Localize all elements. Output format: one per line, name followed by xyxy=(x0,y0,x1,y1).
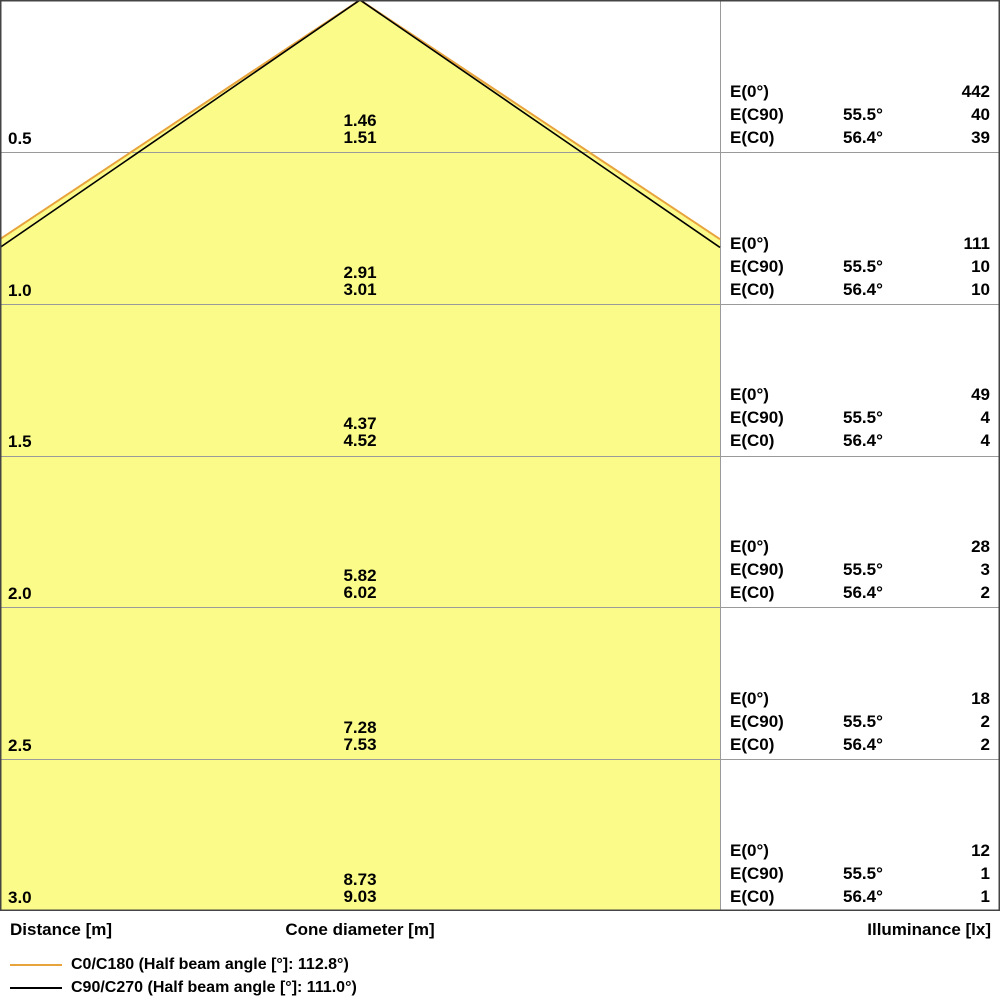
row-2.0m: 2.0 5.82 6.02 E(0°)28 E(C90)55.5°3 E(C0)… xyxy=(0,455,1000,607)
e0-value: 18 xyxy=(971,687,990,710)
row-0.5m: 0.5 1.46 1.51 E(0°)442 E(C90)55.5°40 E(C… xyxy=(0,0,1000,152)
cone-diameter-values: 7.28 7.53 xyxy=(260,719,460,753)
ec0-value: 39 xyxy=(971,126,990,149)
cone-diameter-c0: 6.02 xyxy=(260,584,460,601)
ec0-value: 1 xyxy=(981,885,990,908)
cone-diameter-c90: 1.46 xyxy=(260,112,460,129)
ec90-angle: 55.5° xyxy=(843,255,971,278)
row-3.0m: 3.0 8.73 9.03 E(0°)12 E(C90)55.5°1 E(C0)… xyxy=(0,759,1000,911)
e0-angle xyxy=(843,535,971,558)
cone-diameter-c0: 4.52 xyxy=(260,432,460,449)
ec90-label: E(C90) xyxy=(730,103,843,126)
distance-label: 1.0 xyxy=(8,281,32,301)
cone-diameter-values: 4.37 4.52 xyxy=(260,415,460,449)
ec90-angle: 55.5° xyxy=(843,710,981,733)
chart-area: 0.5 1.46 1.51 E(0°)442 E(C90)55.5°40 E(C… xyxy=(0,0,1000,911)
e0-line: E(0°)12 xyxy=(730,839,990,862)
c90-c270-line-swatch xyxy=(10,987,62,989)
ec90-angle: 55.5° xyxy=(843,558,981,581)
legend-item-c90-c270: C90/C270 (Half beam angle [°]: 111.0°) xyxy=(10,976,1000,999)
ec0-value: 2 xyxy=(981,733,990,756)
e0-line: E(0°)18 xyxy=(730,687,990,710)
axis-label-distance: Distance [m] xyxy=(10,920,112,940)
ec90-value: 2 xyxy=(981,710,990,733)
ec90-line: E(C90)55.5°4 xyxy=(730,406,990,429)
e0-angle xyxy=(843,232,964,255)
ec0-label: E(C0) xyxy=(730,126,843,149)
cone-diameter-c90: 4.37 xyxy=(260,415,460,432)
ec0-label: E(C0) xyxy=(730,581,843,604)
illuminance-table: E(0°)18 E(C90)55.5°2 E(C0)56.4°2 xyxy=(730,687,990,756)
ec90-value: 3 xyxy=(981,558,990,581)
illuminance-table: E(0°)49 E(C90)55.5°4 E(C0)56.4°4 xyxy=(730,383,990,452)
axis-label-illuminance: Illuminance [lx] xyxy=(867,920,991,940)
e0-angle xyxy=(843,839,971,862)
ec0-value: 2 xyxy=(981,581,990,604)
legend-label-c0-c180: C0/C180 (Half beam angle [°]: 112.8°) xyxy=(71,956,349,974)
illuminance-table: E(0°)28 E(C90)55.5°3 E(C0)56.4°2 xyxy=(730,535,990,604)
ec0-angle: 56.4° xyxy=(843,278,971,301)
cone-diameter-c0: 3.01 xyxy=(260,281,460,298)
cone-diameter-c90: 5.82 xyxy=(260,567,460,584)
e0-label: E(0°) xyxy=(730,687,843,710)
ec90-label: E(C90) xyxy=(730,255,843,278)
ec90-label: E(C90) xyxy=(730,406,843,429)
row-2.5m: 2.5 7.28 7.53 E(0°)18 E(C90)55.5°2 E(C0)… xyxy=(0,607,1000,759)
distance-label: 1.5 xyxy=(8,432,32,452)
axis-labels: Distance [m] Cone diameter [m] Illuminan… xyxy=(0,920,1000,944)
ec0-line: E(C0)56.4°2 xyxy=(730,581,990,604)
ec90-line: E(C90)55.5°1 xyxy=(730,862,990,885)
ec90-line: E(C90)55.5°3 xyxy=(730,558,990,581)
cone-diameter-c0: 7.53 xyxy=(260,736,460,753)
legend: C0/C180 (Half beam angle [°]: 112.8°) C9… xyxy=(0,953,1000,999)
cone-diameter-values: 1.46 1.51 xyxy=(260,112,460,146)
ec0-label: E(C0) xyxy=(730,733,843,756)
e0-angle xyxy=(843,80,962,103)
illuminance-table: E(0°)12 E(C90)55.5°1 E(C0)56.4°1 xyxy=(730,839,990,908)
row-1.0m: 1.0 2.91 3.01 E(0°)111 E(C90)55.5°10 E(C… xyxy=(0,152,1000,304)
e0-angle xyxy=(843,383,971,406)
ec0-label: E(C0) xyxy=(730,885,843,908)
ec0-value: 4 xyxy=(981,429,990,452)
ec90-angle: 55.5° xyxy=(843,862,981,885)
e0-value: 442 xyxy=(962,80,990,103)
ec90-line: E(C90)55.5°2 xyxy=(730,710,990,733)
chart-footer: Distance [m] Cone diameter [m] Illuminan… xyxy=(0,911,1000,1000)
cone-diameter-c90: 2.91 xyxy=(260,264,460,281)
legend-label-c90-c270: C90/C270 (Half beam angle [°]: 111.0°) xyxy=(71,979,357,997)
ec0-angle: 56.4° xyxy=(843,126,971,149)
ec90-value: 4 xyxy=(981,406,990,429)
ec90-angle: 55.5° xyxy=(843,406,981,429)
distance-rows: 0.5 1.46 1.51 E(0°)442 E(C90)55.5°40 E(C… xyxy=(0,0,1000,911)
ec0-line: E(C0)56.4°1 xyxy=(730,885,990,908)
cone-diagram: 0.5 1.46 1.51 E(0°)442 E(C90)55.5°40 E(C… xyxy=(0,0,1000,1000)
ec90-label: E(C90) xyxy=(730,558,843,581)
ec0-line: E(C0)56.4°4 xyxy=(730,429,990,452)
e0-label: E(0°) xyxy=(730,80,843,103)
row-1.5m: 1.5 4.37 4.52 E(0°)49 E(C90)55.5°4 E(C0)… xyxy=(0,304,1000,456)
distance-label: 0.5 xyxy=(8,129,32,149)
ec0-line: E(C0)56.4°2 xyxy=(730,733,990,756)
e0-line: E(0°)111 xyxy=(730,232,990,255)
e0-line: E(0°)49 xyxy=(730,383,990,406)
ec90-value: 1 xyxy=(981,862,990,885)
ec0-line: E(C0)56.4°10 xyxy=(730,278,990,301)
ec90-angle: 55.5° xyxy=(843,103,971,126)
ec90-label: E(C90) xyxy=(730,710,843,733)
e0-label: E(0°) xyxy=(730,383,843,406)
cone-diameter-values: 5.82 6.02 xyxy=(260,567,460,601)
e0-value: 28 xyxy=(971,535,990,558)
cone-diameter-c0: 1.51 xyxy=(260,129,460,146)
illuminance-table: E(0°)111 E(C90)55.5°10 E(C0)56.4°10 xyxy=(730,232,990,301)
distance-label: 2.5 xyxy=(8,736,32,756)
distance-label: 3.0 xyxy=(8,888,32,908)
ec0-value: 10 xyxy=(971,278,990,301)
ec0-angle: 56.4° xyxy=(843,885,981,908)
e0-value: 12 xyxy=(971,839,990,862)
e0-label: E(0°) xyxy=(730,535,843,558)
ec90-line: E(C90)55.5°40 xyxy=(730,103,990,126)
e0-angle xyxy=(843,687,971,710)
cone-diameter-c90: 8.73 xyxy=(260,871,460,888)
ec0-angle: 56.4° xyxy=(843,581,981,604)
distance-label: 2.0 xyxy=(8,584,32,604)
ec90-line: E(C90)55.5°10 xyxy=(730,255,990,278)
cone-diameter-values: 8.73 9.03 xyxy=(260,871,460,905)
e0-line: E(0°)442 xyxy=(730,80,990,103)
e0-label: E(0°) xyxy=(730,232,843,255)
axis-label-cone-diameter: Cone diameter [m] xyxy=(260,920,460,940)
ec0-label: E(C0) xyxy=(730,278,843,301)
ec0-line: E(C0)56.4°39 xyxy=(730,126,990,149)
e0-value: 49 xyxy=(971,383,990,406)
illuminance-table: E(0°)442 E(C90)55.5°40 E(C0)56.4°39 xyxy=(730,80,990,149)
ec0-angle: 56.4° xyxy=(843,733,981,756)
e0-line: E(0°)28 xyxy=(730,535,990,558)
cone-diameter-c90: 7.28 xyxy=(260,719,460,736)
cone-diameter-values: 2.91 3.01 xyxy=(260,264,460,298)
ec90-value: 10 xyxy=(971,255,990,278)
cone-diameter-c0: 9.03 xyxy=(260,888,460,905)
ec0-label: E(C0) xyxy=(730,429,843,452)
c0-c180-line-swatch xyxy=(10,964,62,966)
e0-value: 111 xyxy=(964,232,991,255)
ec90-value: 40 xyxy=(971,103,990,126)
ec90-label: E(C90) xyxy=(730,862,843,885)
e0-label: E(0°) xyxy=(730,839,843,862)
ec0-angle: 56.4° xyxy=(843,429,981,452)
legend-item-c0-c180: C0/C180 (Half beam angle [°]: 112.8°) xyxy=(10,953,1000,976)
